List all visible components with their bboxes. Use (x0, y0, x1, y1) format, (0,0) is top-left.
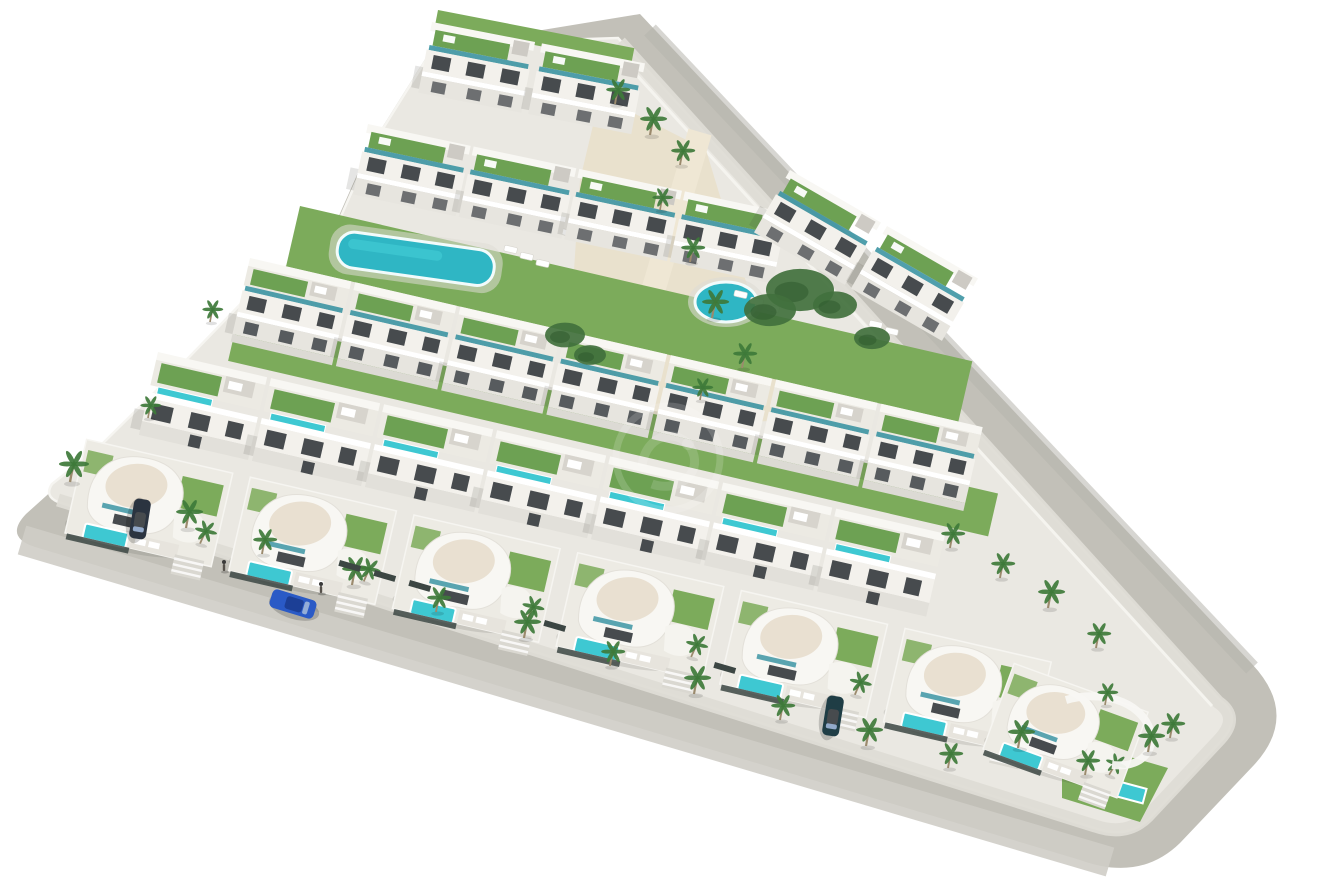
palm-shadow (1143, 751, 1157, 756)
palm-shadow (737, 368, 750, 372)
palm-shadow (605, 666, 618, 670)
palm-shadow (685, 262, 698, 266)
palm-shadow (1013, 747, 1027, 752)
palm-shadow (144, 418, 155, 422)
palm-shadow (347, 584, 361, 589)
tree-cluster-shade (578, 352, 594, 362)
palm-shadow (181, 527, 195, 532)
palm-shadow (945, 548, 958, 552)
palm-shadow (675, 165, 688, 169)
palm-shadow (943, 768, 956, 772)
palm-shadow (610, 104, 623, 108)
pedestrian-body (223, 564, 225, 571)
palm-shadow (656, 210, 667, 214)
pedestrian-shadow (221, 571, 229, 574)
aerial-render-canvas (0, 0, 1320, 895)
palm-shadow (707, 317, 721, 322)
palm-shadow (519, 637, 533, 642)
architectural-render: Aerial 3D architectural render of a tria… (0, 0, 1320, 895)
palm-shadow (1165, 738, 1178, 742)
pedestrian-head (319, 582, 323, 586)
palm-shadow (1101, 705, 1112, 709)
palm-shadow (861, 745, 875, 750)
palm-shadow (689, 693, 703, 698)
palm-shadow (696, 400, 707, 404)
stair-tower (511, 40, 529, 57)
palm-shadow (995, 578, 1008, 582)
palm-shadow (431, 612, 444, 616)
palm-shadow (1080, 775, 1093, 779)
palm-shadow (1091, 648, 1104, 652)
pedestrian-head (222, 560, 226, 564)
pedestrian-shadow (318, 593, 326, 596)
palm-shadow (206, 322, 217, 326)
palm-shadow (64, 481, 80, 486)
tree-cluster-shade (819, 300, 841, 313)
tree-cluster-shade (550, 331, 570, 343)
palm-shadow (1043, 607, 1057, 612)
palm-shadow (257, 554, 270, 558)
tree-cluster-shade (859, 335, 877, 346)
tree-cluster-shade (751, 304, 777, 320)
palm-tree (202, 299, 223, 325)
stair-tower (621, 61, 639, 78)
watermark-dot (682, 438, 694, 450)
palm-shadow (775, 720, 788, 724)
pedestrian-body (320, 586, 322, 593)
palm-shadow (645, 134, 659, 139)
